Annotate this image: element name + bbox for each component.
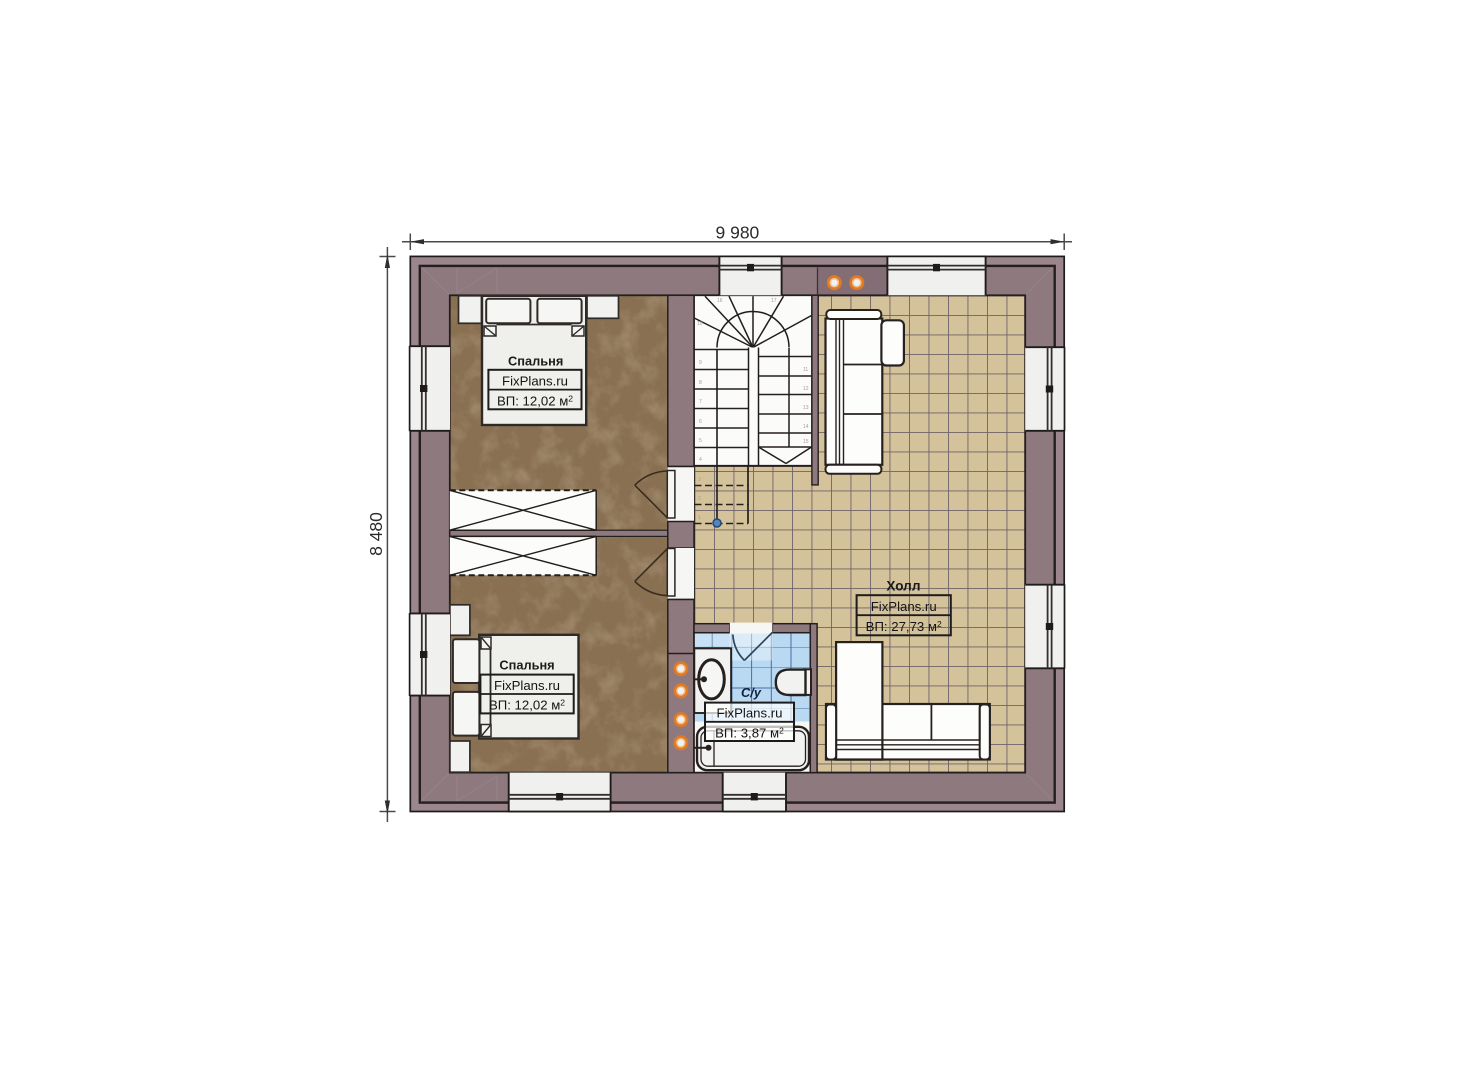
svg-text:9 980: 9 980 [716,223,760,243]
svg-text:15: 15 [803,439,809,445]
svg-text:FixPlans.ru: FixPlans.ru [871,599,937,614]
svg-text:3: 3 [698,477,701,483]
svg-text:9: 9 [699,360,702,366]
svg-text:С/у: С/у [741,685,762,700]
svg-text:2: 2 [698,496,701,502]
svg-text:1: 1 [698,515,701,521]
svg-text:8: 8 [699,380,702,386]
svg-text:13: 13 [803,405,809,411]
svg-text:16: 16 [717,298,723,304]
svg-text:5: 5 [699,438,702,444]
svg-text:ВП: 12,02 м2: ВП: 12,02 м2 [497,393,573,408]
svg-text:Спальня: Спальня [499,658,554,673]
svg-text:FixPlans.ru: FixPlans.ru [494,678,560,693]
svg-text:10: 10 [697,321,703,327]
svg-text:FixPlans.ru: FixPlans.ru [502,374,568,389]
svg-text:17: 17 [771,298,777,304]
svg-text:6: 6 [699,419,702,425]
svg-text:ВП: 27,73 м2: ВП: 27,73 м2 [866,619,942,634]
svg-text:8 480: 8 480 [366,512,386,556]
svg-text:7: 7 [699,399,702,405]
svg-text:4: 4 [699,457,702,463]
svg-text:14: 14 [803,424,809,430]
svg-text:ВП: 12,02 м2: ВП: 12,02 м2 [489,698,565,713]
svg-text:FixPlans.ru: FixPlans.ru [717,706,783,721]
svg-text:12: 12 [803,386,809,392]
svg-text:11: 11 [803,367,808,373]
svg-text:Спальня: Спальня [508,353,563,368]
svg-text:Холл: Холл [886,578,920,593]
svg-text:ВП: 3,87 м2: ВП: 3,87 м2 [715,725,784,740]
